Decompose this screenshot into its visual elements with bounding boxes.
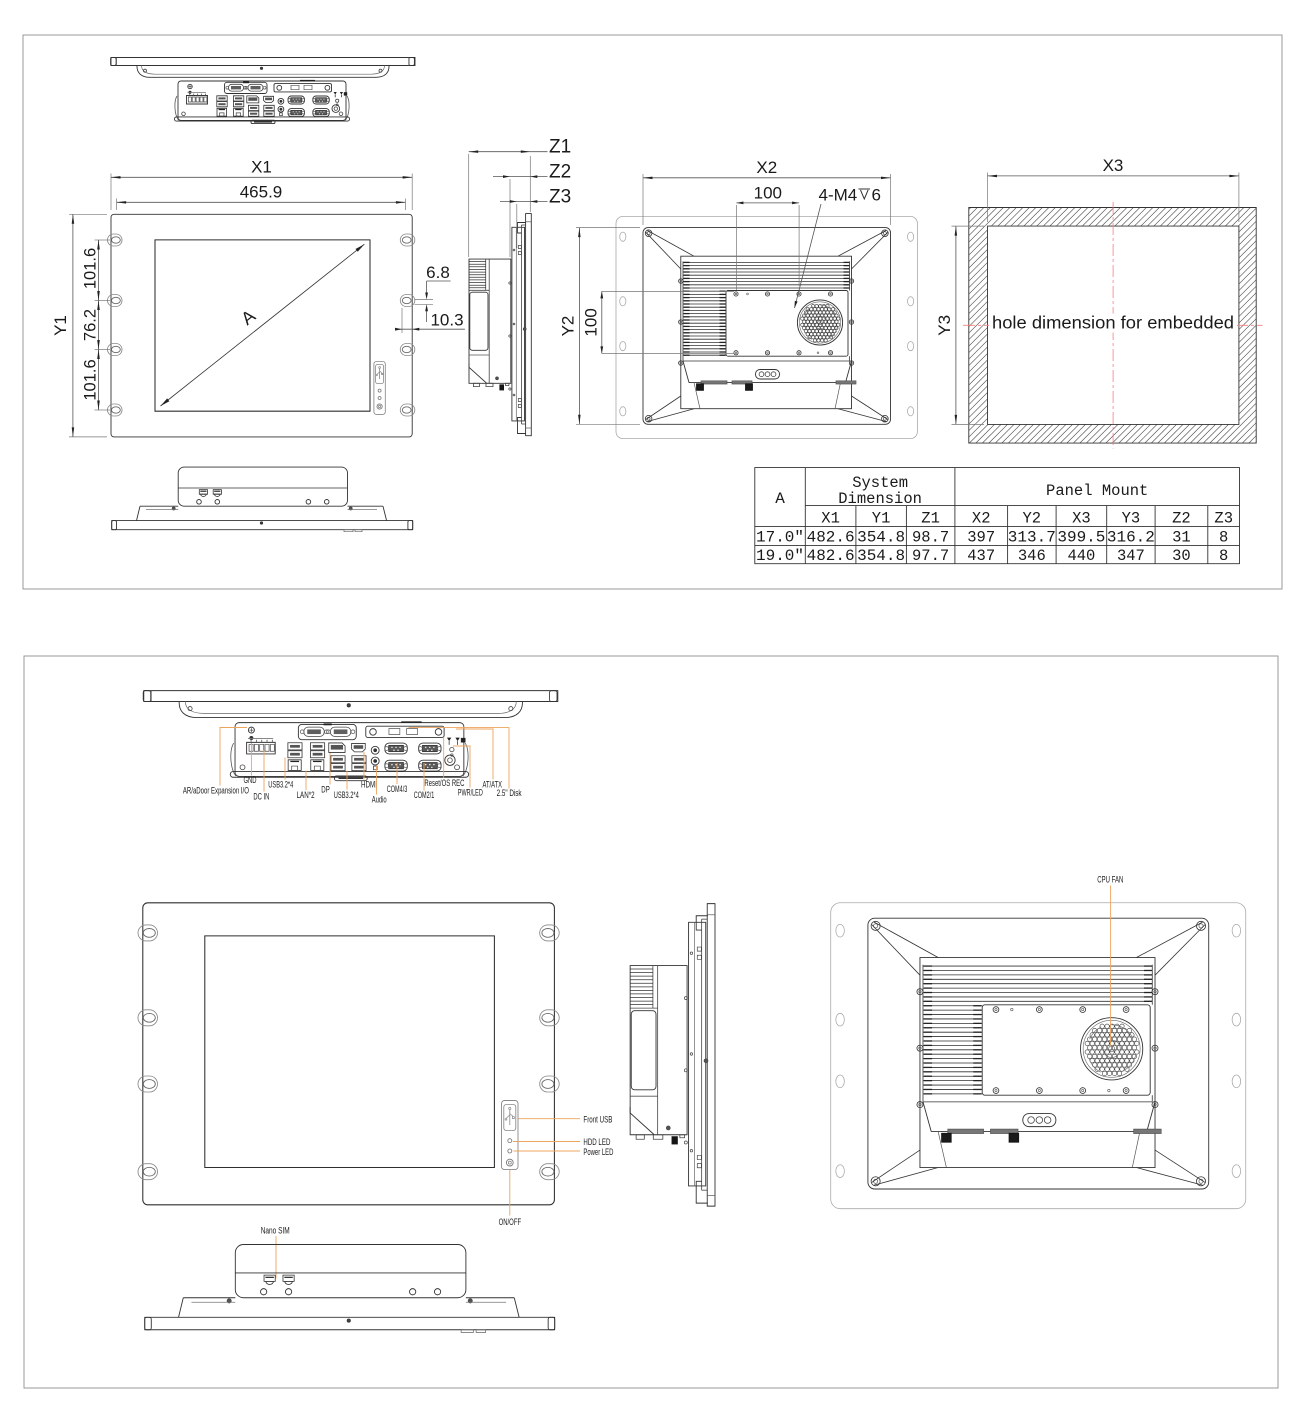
svg-text:8: 8 [1219, 528, 1228, 546]
svg-text:Z3: Z3 [1214, 509, 1233, 527]
svg-text:Y2: Y2 [1022, 509, 1041, 527]
svg-text:482.6: 482.6 [807, 547, 855, 565]
svg-text:6: 6 [872, 185, 881, 204]
svg-text:Y1: Y1 [872, 509, 891, 527]
svg-text:Y3: Y3 [1122, 509, 1141, 527]
svg-text:X3: X3 [1103, 156, 1124, 175]
svg-text:Front USB: Front USB [583, 1115, 612, 1126]
svg-text:Z3: Z3 [549, 187, 571, 208]
svg-text:465.9: 465.9 [240, 183, 283, 202]
svg-text:USB3.2*4: USB3.2*4 [268, 779, 293, 790]
svg-text:X1: X1 [251, 158, 272, 177]
svg-text:19.0": 19.0" [756, 547, 804, 565]
svg-text:CPU FAN: CPU FAN [1097, 874, 1123, 885]
svg-text:GND: GND [244, 775, 257, 786]
svg-text:A: A [775, 490, 785, 508]
svg-text:8: 8 [1219, 547, 1228, 565]
svg-text:100: 100 [754, 184, 782, 203]
svg-text:346: 346 [1018, 547, 1046, 565]
svg-text:10.3: 10.3 [430, 311, 463, 330]
svg-text:6.8: 6.8 [426, 263, 450, 282]
svg-text:30: 30 [1172, 547, 1191, 565]
svg-text:X3: X3 [1072, 509, 1091, 527]
svg-text:100: 100 [582, 308, 601, 336]
svg-text:354.8: 354.8 [857, 547, 905, 565]
svg-text:313.7: 313.7 [1008, 528, 1056, 546]
svg-text:437: 437 [967, 547, 995, 565]
svg-text:Y3: Y3 [935, 315, 954, 336]
svg-text:Y1: Y1 [51, 315, 70, 336]
svg-text:COM2/1: COM2/1 [414, 790, 435, 801]
svg-text:440: 440 [1067, 547, 1095, 565]
svg-text:17.0": 17.0" [756, 528, 804, 546]
svg-text:101.6: 101.6 [81, 359, 99, 400]
svg-text:LAN*2: LAN*2 [297, 790, 315, 801]
svg-text:COM4/3: COM4/3 [387, 784, 408, 795]
svg-text:DC IN: DC IN [253, 791, 269, 802]
svg-text:AR/aDoor Expansion I/O: AR/aDoor Expansion I/O [183, 786, 249, 797]
svg-text:Panel Mount: Panel Mount [1046, 482, 1148, 500]
svg-text:Dimension: Dimension [838, 490, 922, 508]
svg-text:DP: DP [321, 785, 330, 796]
svg-text:Power LED: Power LED [583, 1147, 613, 1158]
svg-text:X2: X2 [972, 509, 991, 527]
svg-text:397: 397 [967, 528, 995, 546]
svg-text:PWR/LED: PWR/LED [458, 788, 483, 799]
svg-text:399.5: 399.5 [1057, 528, 1105, 546]
svg-text:Y2: Y2 [559, 316, 578, 337]
svg-text:2.5" Disk: 2.5" Disk [497, 788, 522, 799]
svg-text:Z2: Z2 [549, 162, 571, 183]
svg-text:482.6: 482.6 [807, 528, 855, 546]
svg-text:Z1: Z1 [549, 137, 571, 158]
svg-text:Audio: Audio [372, 795, 387, 806]
svg-text:76.2: 76.2 [81, 309, 99, 341]
svg-text:X1: X1 [821, 509, 840, 527]
svg-text:4-M4: 4-M4 [819, 185, 858, 204]
svg-text:Z1: Z1 [921, 509, 940, 527]
svg-text:347: 347 [1117, 547, 1145, 565]
svg-text:ON/OFF: ON/OFF [499, 1217, 522, 1228]
svg-text:316.2: 316.2 [1107, 528, 1155, 546]
svg-text:Nano SIM: Nano SIM [261, 1225, 290, 1236]
svg-text:31: 31 [1172, 528, 1191, 546]
svg-text:USB3.2*4: USB3.2*4 [334, 790, 359, 801]
svg-text:101.6: 101.6 [81, 248, 99, 289]
svg-text:97.7: 97.7 [912, 547, 949, 565]
svg-text:Z2: Z2 [1172, 509, 1191, 527]
svg-text:HDMI: HDMI [361, 779, 377, 790]
svg-text:354.8: 354.8 [857, 528, 905, 546]
svg-text:98.7: 98.7 [912, 528, 949, 546]
svg-text:hole dimension for embedded: hole dimension for embedded [992, 313, 1234, 333]
svg-text:X2: X2 [756, 158, 777, 177]
